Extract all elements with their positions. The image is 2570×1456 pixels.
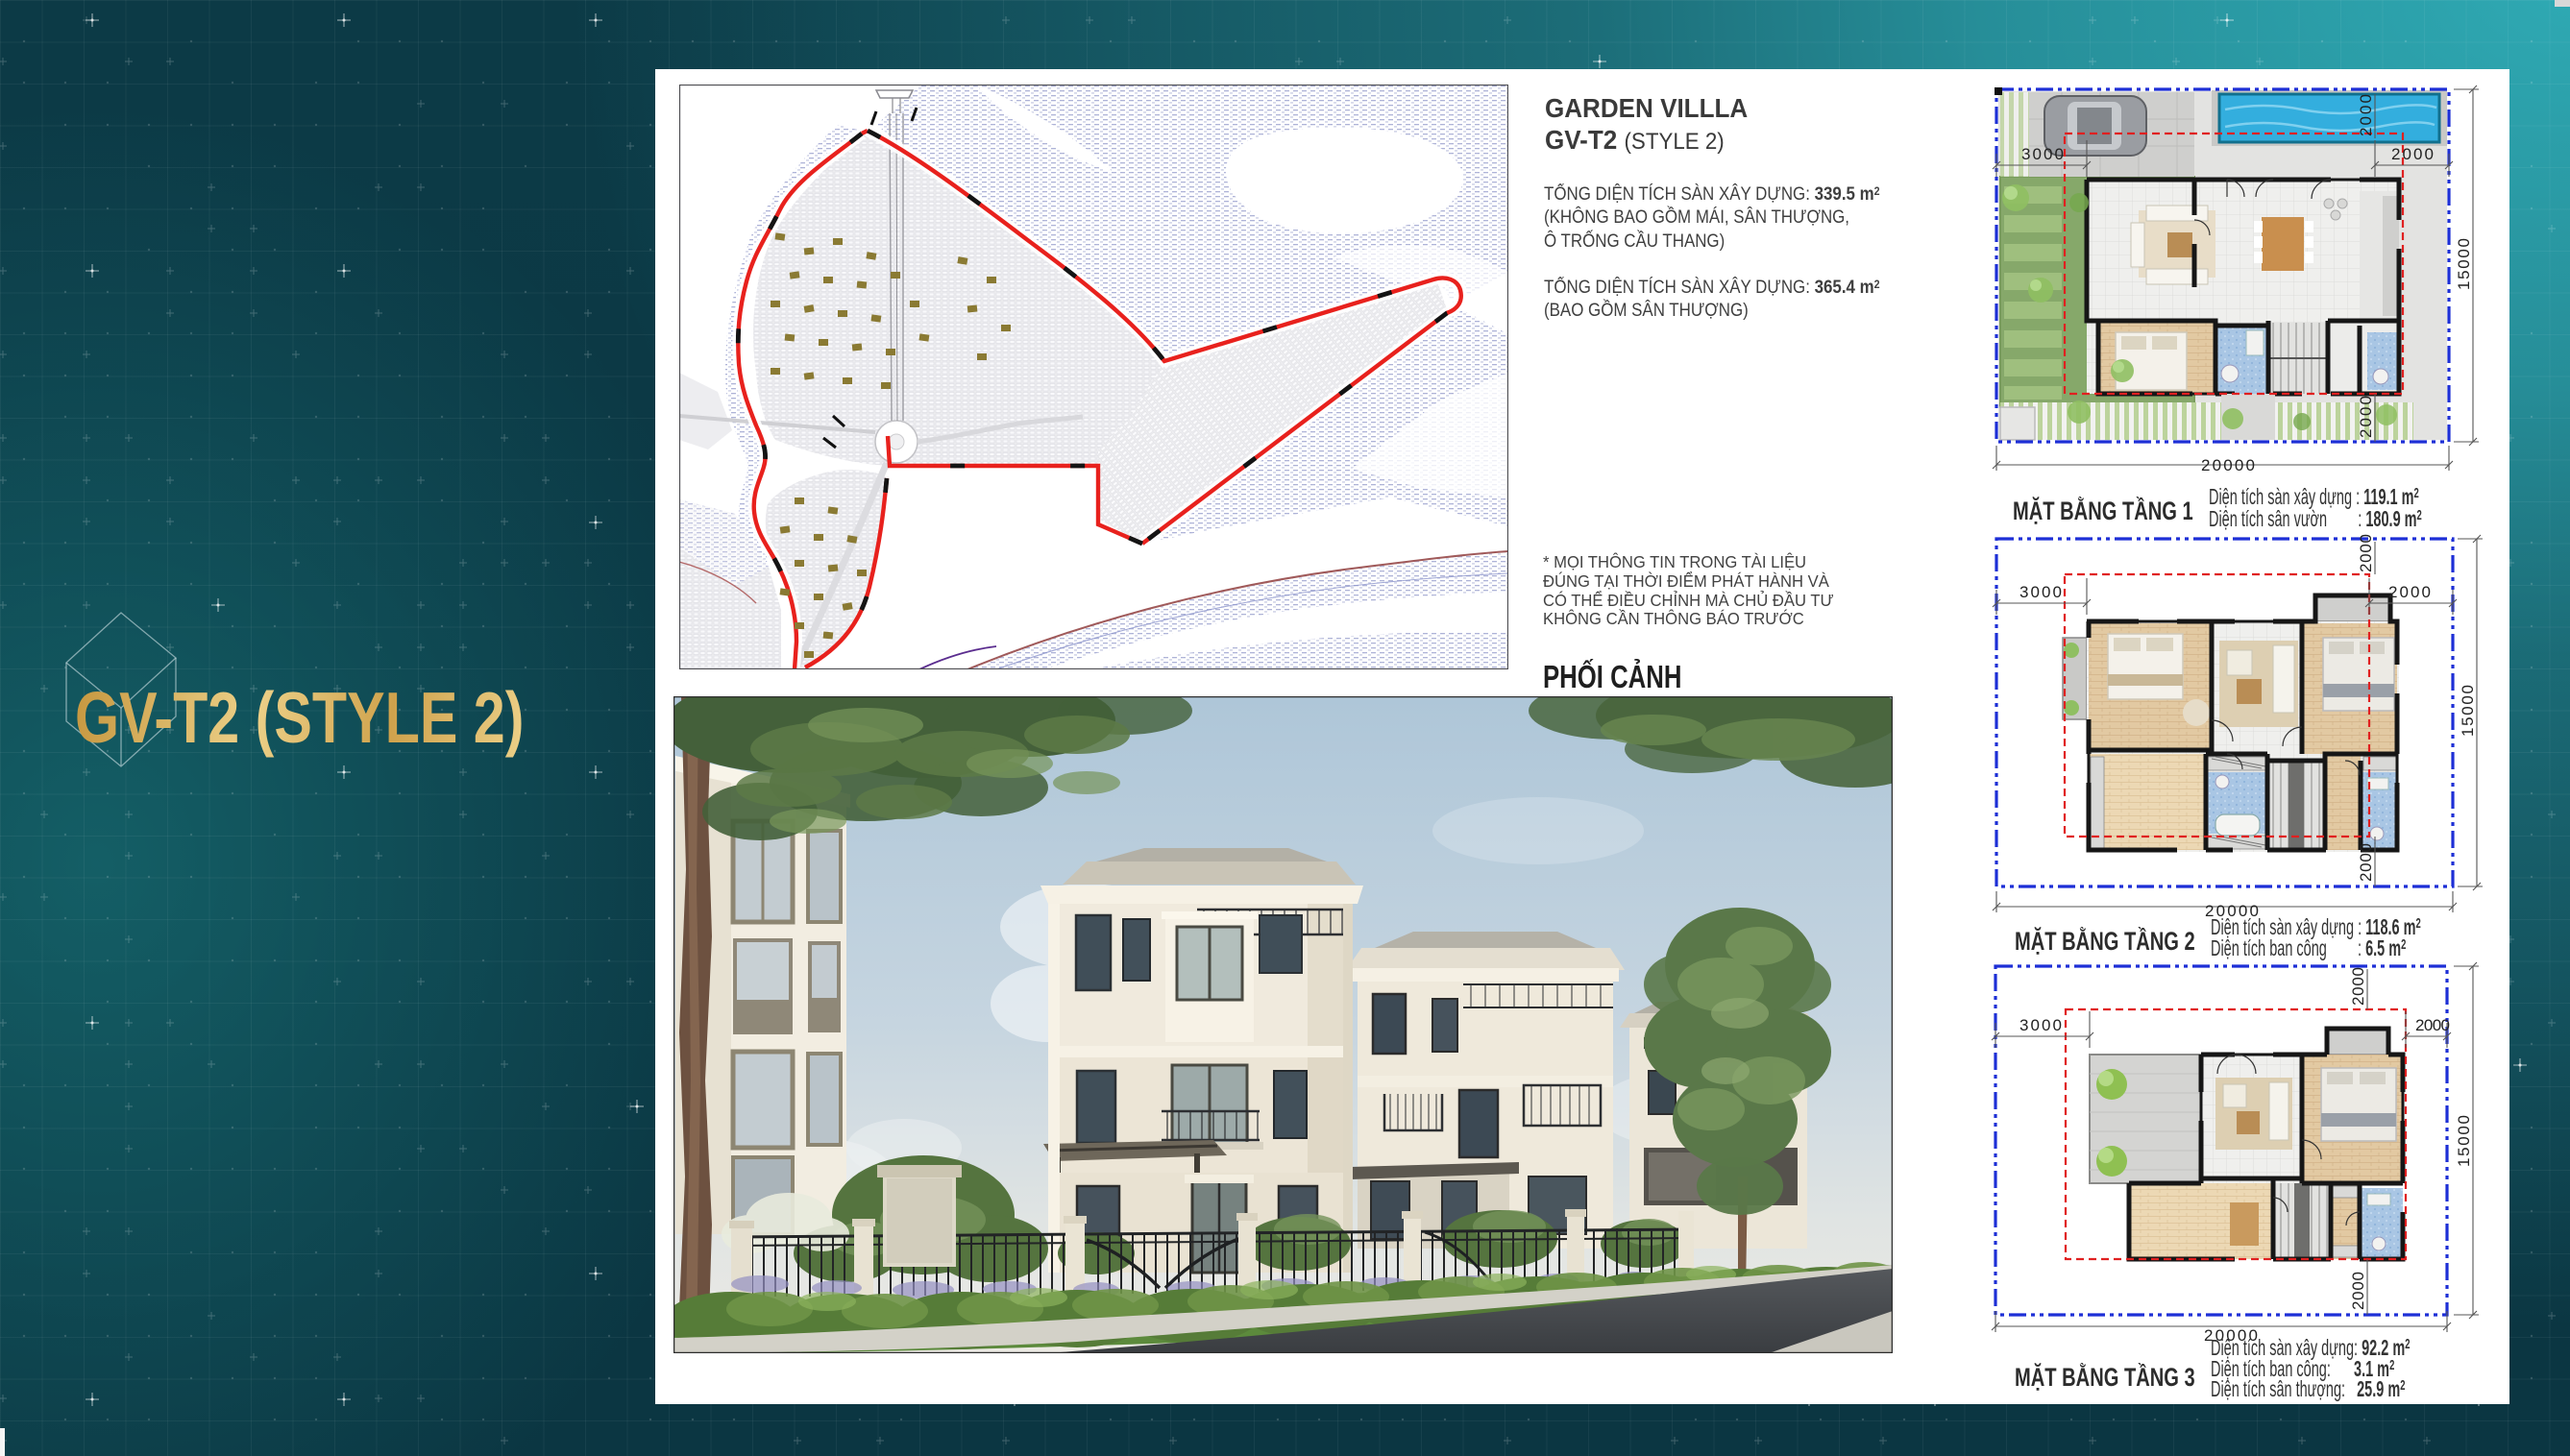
svg-text:2000: 2000 <box>2349 967 2367 1006</box>
svg-text:15000: 15000 <box>2455 238 2473 290</box>
svg-text:3000: 3000 <box>2019 583 2062 601</box>
svg-text:2000: 2000 <box>2357 843 2375 882</box>
svg-text:2000: 2000 <box>2349 1272 2367 1310</box>
svg-text:2000: 2000 <box>2415 1016 2450 1034</box>
svg-text:3000: 3000 <box>2019 1016 2062 1034</box>
svg-text:2000: 2000 <box>2357 534 2375 572</box>
svg-text:2000: 2000 <box>2388 583 2431 601</box>
svg-text:20000: 20000 <box>2201 456 2255 474</box>
svg-text:15000: 15000 <box>2455 1115 2473 1167</box>
svg-text:15000: 15000 <box>2459 685 2477 737</box>
